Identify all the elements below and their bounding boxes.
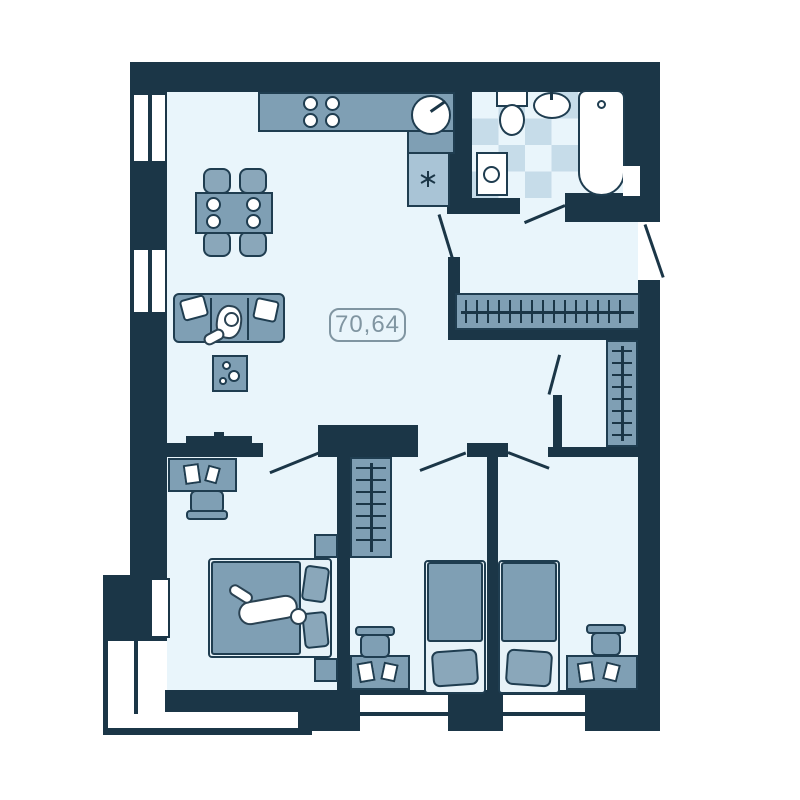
nightstand-2: [314, 658, 338, 682]
person-on-sofa-head: [224, 312, 239, 327]
stove-burner-4: [325, 113, 340, 128]
wall-master-bedroom1: [337, 457, 350, 690]
wall-right-lower: [638, 280, 660, 731]
hangers-icon: [465, 300, 630, 323]
bedroom1-pillow: [431, 648, 479, 687]
stove-burner-3: [303, 113, 318, 128]
hangers-icon: [356, 467, 386, 548]
balcony-right-cap: [298, 690, 312, 731]
wall-bath-bottom-right: [565, 193, 640, 222]
master-pillow-1: [301, 564, 331, 603]
nightstand-1: [314, 534, 338, 558]
master-desk-paper-1: [183, 463, 202, 485]
wall-right-upper: [638, 92, 660, 222]
area-label: 70,64: [329, 308, 406, 342]
plate-3: [206, 214, 221, 229]
wall-master-top: [167, 443, 263, 457]
wall-bath-bottom-left: [447, 198, 520, 214]
stove-burner-1: [303, 96, 318, 111]
tv-stand: [214, 432, 224, 437]
coffee-cup-2: [219, 377, 227, 385]
snowflake-icon: [420, 171, 436, 187]
toilet-bowl: [499, 104, 525, 136]
coffee-cup-1: [222, 361, 231, 370]
bedroom2-desk: [566, 655, 638, 690]
bathroom-sink-faucet: [550, 86, 553, 100]
plate-2: [246, 197, 261, 212]
wall-top: [130, 62, 660, 92]
balcony-door: [150, 578, 170, 638]
plate-4: [246, 214, 261, 229]
wall-under-wardrobe: [448, 330, 638, 340]
wall-bath-right-block: [623, 92, 638, 166]
balcony-glazing-line: [134, 641, 138, 714]
bedroom1-bed-blanket: [427, 562, 483, 642]
wall-bedrooms-top-mid: [467, 443, 508, 457]
bedroom2-chair-seat: [591, 632, 621, 656]
hallway-wardrobe: [455, 293, 640, 330]
floor-plan: 70,64: [0, 0, 800, 800]
plate-1: [206, 197, 221, 212]
stove-burner-2: [325, 96, 340, 111]
coffee-plate: [228, 370, 240, 382]
master-chair-back: [186, 510, 228, 520]
window-bottom-2-mullion: [503, 712, 585, 716]
washing-machine-door: [483, 166, 500, 183]
bedroom1-paper-1: [356, 661, 375, 683]
wall-master-bottom: [165, 690, 300, 712]
closet-wardrobe: [606, 340, 638, 447]
balcony-outer-bottom: [103, 728, 312, 735]
dining-chair-3: [203, 231, 231, 257]
balcony-outer-left: [103, 637, 108, 735]
wall-between-bedrooms: [487, 457, 498, 690]
wall-center-block: [318, 425, 418, 457]
tv: [186, 436, 252, 444]
bathtub-niche: [623, 166, 640, 196]
wall-bedrooms-top-right: [548, 447, 638, 457]
sofa-seam-2: [247, 298, 249, 340]
master-desk: [168, 458, 237, 492]
bedroom1-wardrobe: [350, 457, 392, 558]
bedroom2-paper-1: [577, 661, 596, 683]
window-left-1-mullion: [148, 95, 152, 161]
bedroom1-chair-seat: [360, 634, 390, 658]
dining-chair-1: [203, 168, 231, 194]
area-label-text: 70,64: [335, 311, 400, 339]
dining-table: [195, 192, 273, 234]
bedroom2-bed-blanket: [501, 562, 557, 642]
dining-chair-2: [239, 168, 267, 194]
hangers-icon: [612, 350, 632, 437]
window-left-2-mullion: [148, 250, 152, 312]
wall-left-jog: [103, 575, 153, 640]
window-bottom-1-mullion: [360, 712, 448, 716]
bedroom2-pillow: [505, 648, 553, 687]
dining-chair-4: [239, 231, 267, 257]
person-on-bed-head: [290, 608, 307, 625]
sofa-pillow-2: [252, 297, 280, 324]
wall-left: [130, 92, 167, 578]
bathtub-drain: [597, 100, 606, 109]
